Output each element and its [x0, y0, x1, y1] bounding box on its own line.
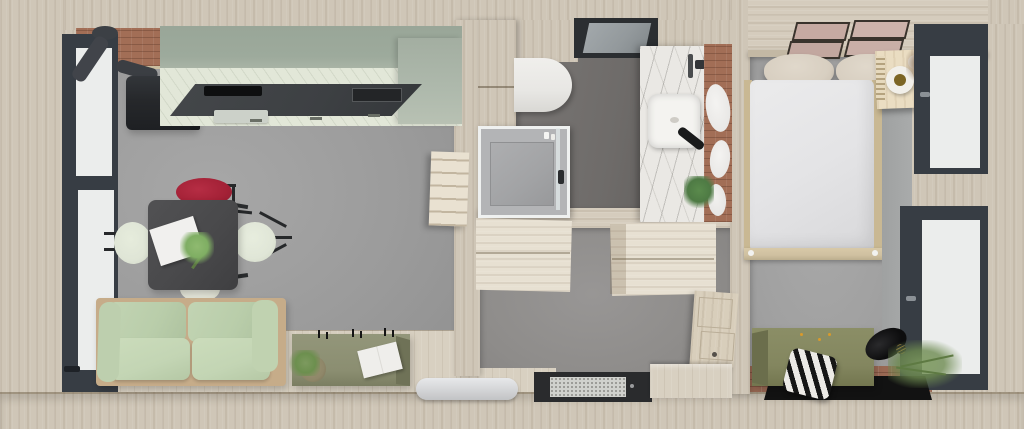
- floorplan-render: [0, 0, 1024, 429]
- kitchen-sink-inset: [352, 88, 402, 102]
- window-handle-icon: [64, 366, 80, 372]
- candle-icon: [384, 328, 386, 336]
- wall-west: [0, 0, 64, 429]
- shampoo-bottle-icon: [551, 134, 555, 140]
- sofa-seat-cushion: [110, 338, 190, 380]
- wall-between-windows: [908, 170, 988, 210]
- hall-cabinet-door: [699, 331, 735, 361]
- sofa-arm-cushion-right: [252, 300, 278, 372]
- candle-icon: [392, 330, 394, 337]
- candle-flame-icon: [800, 333, 803, 336]
- picture-frame: [850, 20, 911, 39]
- window-ne-pane: [930, 56, 980, 168]
- basket-plant: [288, 350, 320, 376]
- wall-sconce-icon: [688, 54, 693, 78]
- candle-icon: [352, 329, 354, 337]
- bath-cabinet-divider: [478, 86, 516, 88]
- candle-flame-icon: [818, 338, 821, 341]
- bath-cabinet: [478, 20, 516, 132]
- cabinet-handle-icon: [310, 117, 322, 120]
- cabinet-handle-icon: [368, 114, 380, 117]
- cabinet-knob-icon: [712, 352, 717, 357]
- radiator: [416, 378, 518, 400]
- sofa-arm-cushion-left: [97, 302, 122, 383]
- window-handle-icon: [906, 296, 916, 301]
- cabinet-handle-icon: [250, 119, 262, 122]
- bath-plant: [684, 176, 714, 208]
- bed-foot-knob-icon: [872, 250, 878, 256]
- door-mat: [550, 377, 626, 397]
- trailing-plant: [888, 340, 962, 388]
- wardrobe-north: [476, 218, 572, 292]
- wardrobe-east-seam: [612, 258, 714, 260]
- wardrobe-north-seam: [476, 252, 570, 254]
- candle-icon: [360, 331, 362, 338]
- entry-step: [650, 364, 732, 398]
- loft-ladder: [429, 151, 470, 226]
- shower-handle-icon: [558, 170, 564, 184]
- door-handle-icon: [630, 384, 634, 388]
- shower-tray: [490, 142, 554, 206]
- basin-drain-icon: [670, 117, 679, 123]
- wall-east: [986, 0, 1024, 429]
- ottoman-side: [752, 330, 768, 386]
- bed-duvet: [750, 80, 874, 252]
- picture-frame: [792, 22, 851, 41]
- candle-icon: [318, 330, 320, 338]
- cooktop: [204, 86, 262, 96]
- window-handle-icon: [920, 92, 930, 97]
- candle-icon: [326, 332, 328, 339]
- bed-foot-bench: [744, 248, 884, 260]
- candle-flame-icon: [828, 333, 831, 336]
- shower-glass: [556, 128, 560, 210]
- chair-east: [234, 222, 276, 262]
- toilet: [514, 58, 572, 112]
- bed-foot-knob-icon: [748, 250, 754, 256]
- nightstand-vent: [876, 56, 885, 100]
- tray-dish-icon: [894, 74, 906, 86]
- shampoo-bottle-icon: [544, 132, 549, 139]
- hall-cabinet-door: [697, 297, 733, 329]
- bouquet: [180, 232, 214, 264]
- kitchen-tall-cabinet: [398, 38, 462, 124]
